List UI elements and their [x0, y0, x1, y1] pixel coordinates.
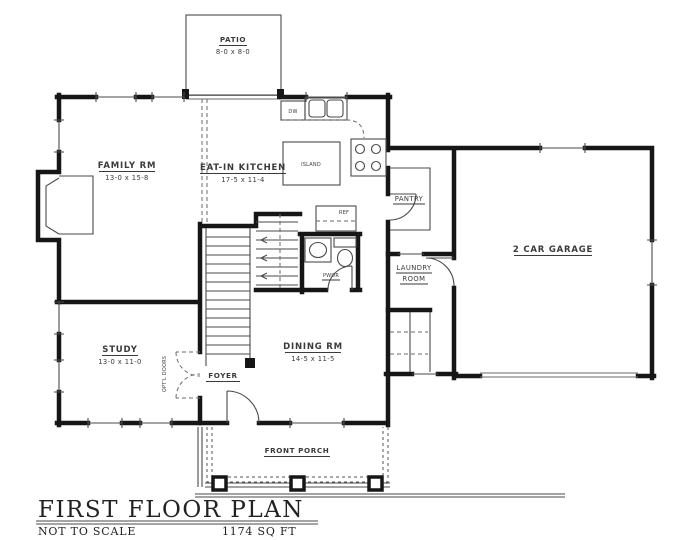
plan-title: FIRST FLOOR PLAN [38, 497, 304, 523]
porch-post [291, 477, 304, 490]
toilet-tank [334, 238, 356, 247]
family-room-label: FAMILY RM [98, 161, 156, 171]
counter-edge [283, 120, 364, 138]
pantry-label: PANTRY [395, 195, 424, 203]
floor-plan-canvas: PATIO 8-0 x 8-0 FAMILY RM 13-0 x 15-8 EA… [0, 0, 700, 540]
porch-post [369, 477, 382, 490]
foyer-label: FOYER [208, 371, 237, 380]
porch-steps [198, 427, 202, 487]
patio-outline [182, 15, 284, 99]
laundry-label-line1: LAUNDRY [396, 264, 432, 272]
sink-oval [310, 243, 327, 258]
laundry-label-line2: ROOM [403, 275, 426, 283]
study-dims: 13-0 x 11-0 [98, 358, 142, 366]
dining-dims: 14-5 x 11-5 [291, 355, 335, 363]
burner [372, 145, 381, 154]
toilet-bowl [338, 250, 353, 267]
porch-post [213, 477, 226, 490]
patio-label: PATIO [220, 35, 246, 44]
kitchen-label: EAT-IN KITCHEN [200, 163, 286, 173]
exterior-walls [38, 95, 654, 425]
burner [356, 162, 365, 171]
burner [372, 162, 381, 171]
windows [54, 92, 657, 428]
optional-doors-label: OPT'L DOORS [162, 356, 168, 392]
title-block: FIRST FLOOR PLAN NOT TO SCALE 1174 SQ FT [36, 494, 565, 538]
porch-label: FRONT PORCH [265, 446, 330, 455]
sink-basin-right [327, 100, 343, 117]
island-label: ISLAND [301, 162, 321, 168]
garage-door-line [480, 373, 638, 377]
scale-note: NOT TO SCALE [38, 525, 136, 538]
optional-french-doors [176, 352, 200, 398]
vanity [305, 238, 331, 262]
front-door [227, 391, 259, 423]
dining-label: DINING RM [283, 342, 343, 352]
refrigerator-label: REF [339, 210, 349, 216]
stove [351, 139, 386, 176]
kitchen-fixtures [281, 98, 386, 231]
patio-dims: 8-0 x 8-0 [216, 48, 250, 56]
interior-walls [57, 214, 452, 423]
study-label: STUDY [102, 345, 137, 355]
laundry-garage-door [426, 258, 454, 286]
sink-basin-left [309, 100, 325, 117]
area-note: 1174 SQ FT [222, 525, 297, 538]
kitchen-dims: 17-5 x 11-4 [221, 176, 265, 184]
powder-label: PWDR [323, 273, 339, 279]
floor-plan-page: PATIO 8-0 x 8-0 FAMILY RM 13-0 x 15-8 EA… [0, 0, 700, 540]
closet-shelves [390, 332, 428, 354]
cased-opening-divider [202, 99, 207, 224]
window-jamb-ticks [54, 92, 657, 428]
burner [356, 145, 365, 154]
newel-post [245, 358, 255, 368]
garage-label: 2 CAR GARAGE [513, 245, 593, 255]
powder-fixtures [305, 238, 356, 267]
front-porch [198, 427, 390, 490]
dishwasher-label: DW [288, 109, 297, 115]
family-room-dims: 13-0 x 15-8 [105, 174, 149, 182]
refrigerator [316, 206, 356, 231]
fireplace [46, 176, 93, 234]
